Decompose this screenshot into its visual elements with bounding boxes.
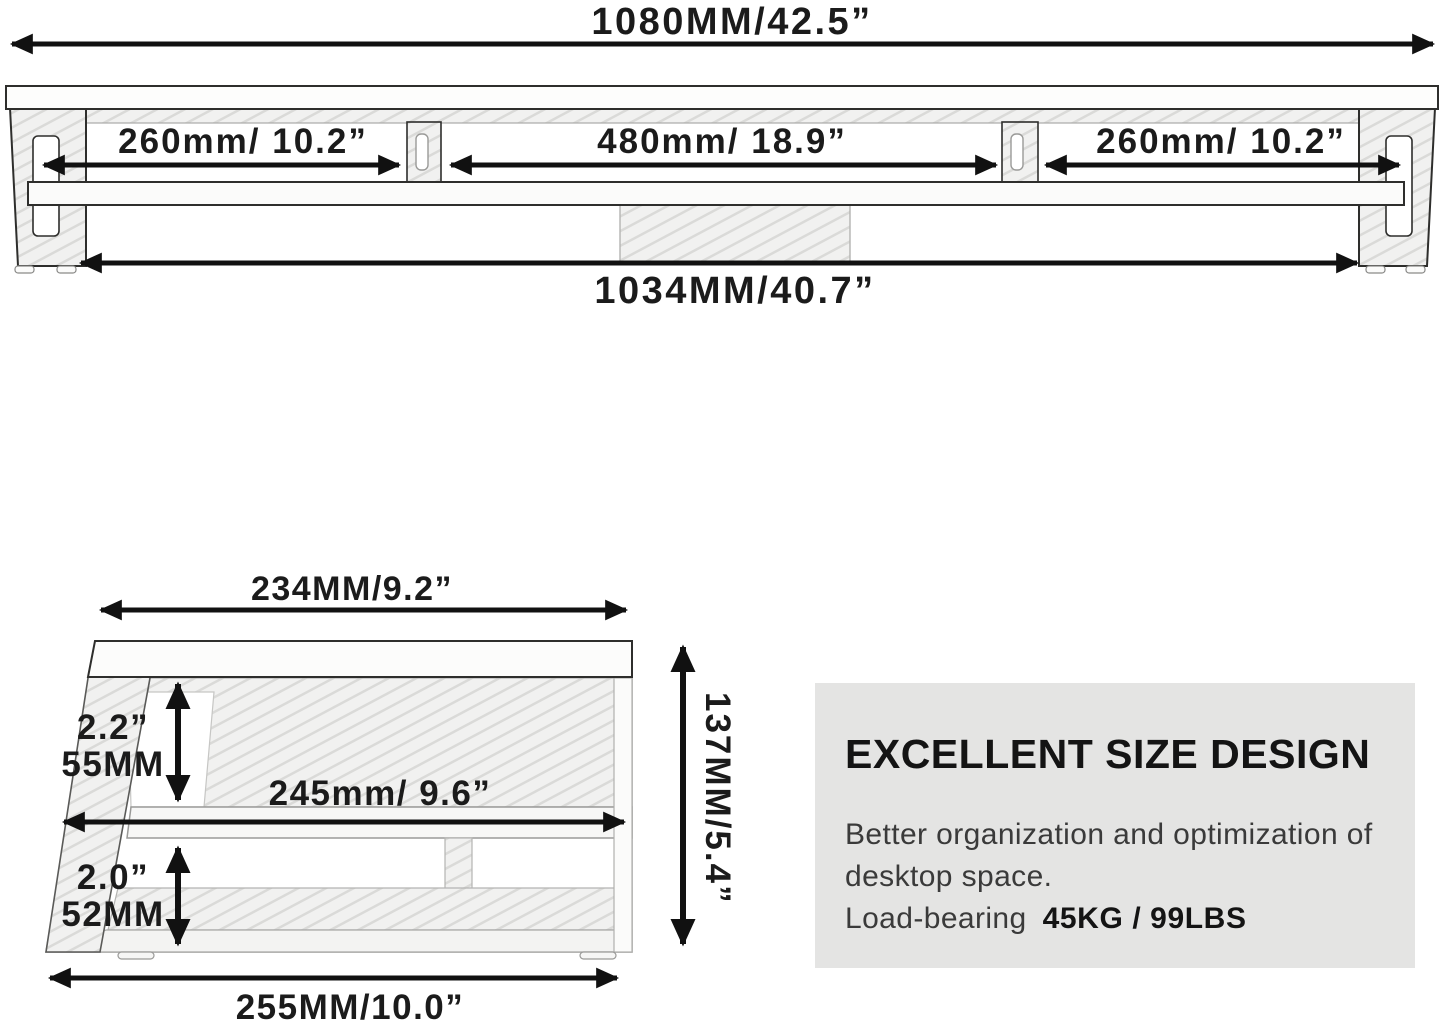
info-box-title: EXCELLENT SIZE DESIGN [845,731,1415,778]
lower-clearance-mm-label: 52MM [61,897,164,932]
info-box: EXCELLENT SIZE DESIGN Better organizatio… [815,683,1415,968]
top-depth-label: 234MM/9.2” [251,572,453,606]
top-view-drawing [6,86,1438,273]
total-height-label: 137MM/5.4” [700,648,735,948]
upper-clearance-inch-label: 2.2” [77,710,149,745]
load-bearing-value: 45KG / 99LBS [1043,902,1247,935]
info-box-line2: desktop space. [845,856,1415,898]
base-depth-label: 255MM/10.0” [236,990,465,1022]
info-box-line1: Better organization and optimization of [845,814,1415,856]
right-section-label: 260mm/ 10.2” [1096,124,1346,159]
upper-clearance-mm-label: 55MM [61,747,164,782]
lower-clearance-inch-label: 2.0” [77,860,149,895]
center-section-label: 480mm/ 18.9” [597,124,847,159]
info-box-line3: Load-bearing45KG / 99LBS [845,898,1415,940]
base-width-label: 1034MM/40.7” [594,272,875,310]
monitor-stand-dimension-diagram: 1080MM/42.5” 260mm/ 10.2” 480mm/ 18.9” 2… [0,0,1445,1022]
load-bearing-label: Load-bearing [845,902,1027,935]
shelf-depth-label: 245mm/ 9.6” [269,776,492,811]
left-section-label: 260mm/ 10.2” [118,124,368,159]
total-width-label: 1080MM/42.5” [591,3,872,41]
